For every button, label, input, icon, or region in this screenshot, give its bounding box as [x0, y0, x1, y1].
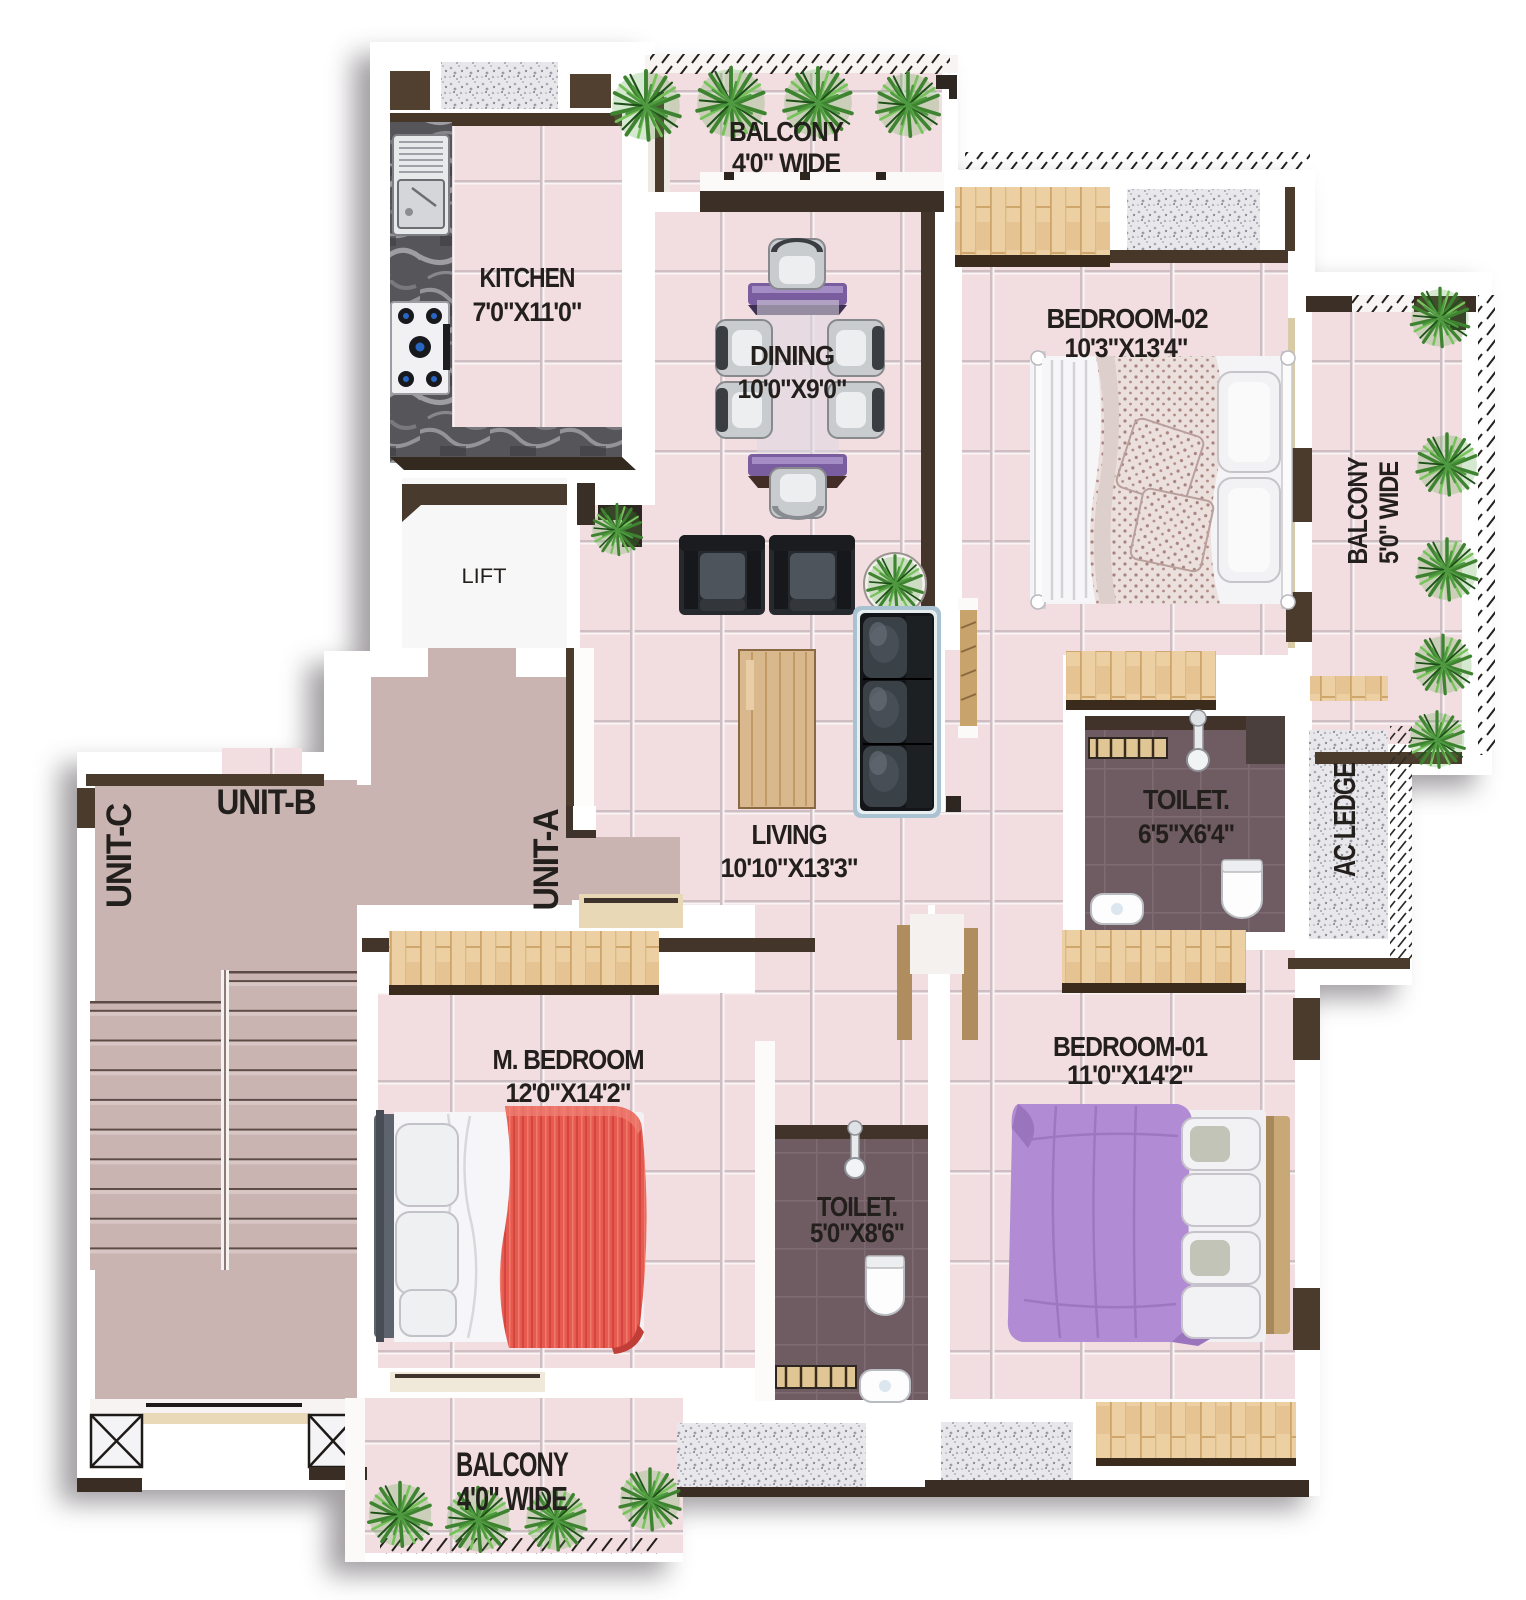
- svg-text:4'0" WIDE: 4'0" WIDE: [732, 148, 840, 178]
- svg-text:AC LEDGE: AC LEDGE: [1327, 763, 1362, 877]
- svg-text:6'5"X6'4": 6'5"X6'4": [1138, 819, 1234, 849]
- svg-text:4'0" WIDE: 4'0" WIDE: [457, 1480, 567, 1517]
- svg-text:KITCHEN: KITCHEN: [480, 262, 575, 293]
- svg-text:TOILET.: TOILET.: [1143, 784, 1229, 815]
- svg-text:UNIT-B: UNIT-B: [217, 783, 316, 822]
- svg-text:LIFT: LIFT: [462, 565, 507, 588]
- svg-text:BEDROOM-01: BEDROOM-01: [1053, 1031, 1208, 1062]
- svg-text:LIVING: LIVING: [752, 819, 827, 850]
- svg-text:5'0"X8'6": 5'0"X8'6": [810, 1218, 904, 1248]
- svg-text:BEDROOM-02: BEDROOM-02: [1047, 303, 1209, 334]
- svg-text:UNIT-C: UNIT-C: [100, 803, 139, 908]
- svg-text:11'0"X14'2": 11'0"X14'2": [1067, 1060, 1193, 1090]
- svg-text:10'3"X13'4": 10'3"X13'4": [1065, 333, 1188, 363]
- svg-text:10'10"X13'3": 10'10"X13'3": [721, 853, 858, 883]
- svg-text:M. BEDROOM: M. BEDROOM: [493, 1044, 644, 1075]
- svg-text:BALCONY: BALCONY: [729, 116, 844, 147]
- svg-text:BALCONY: BALCONY: [456, 1446, 569, 1484]
- svg-text:5'0" WIDE: 5'0" WIDE: [1374, 462, 1404, 564]
- svg-text:BALCONY: BALCONY: [1342, 456, 1373, 564]
- svg-text:12'0"X14'2": 12'0"X14'2": [506, 1078, 631, 1108]
- svg-text:10'0"X9'0": 10'0"X9'0": [738, 374, 847, 404]
- svg-text:7'0"X11'0": 7'0"X11'0": [473, 297, 582, 327]
- svg-text:DINING: DINING: [750, 340, 834, 371]
- svg-text:UNIT-A: UNIT-A: [527, 809, 566, 911]
